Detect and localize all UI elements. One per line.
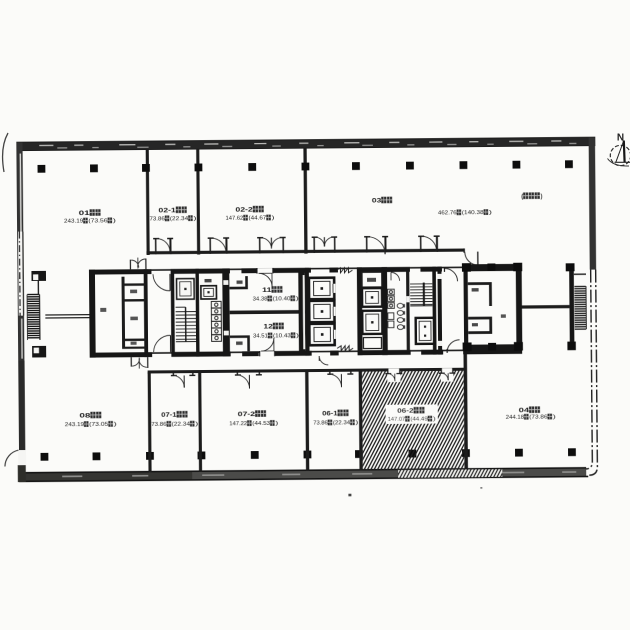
svg-text:(73.05: (73.05	[89, 422, 108, 428]
svg-text:): )	[355, 420, 358, 426]
svg-text:(10.40: (10.40	[273, 296, 291, 302]
svg-text:(44.53: (44.53	[252, 421, 270, 427]
svg-text:03: 03	[372, 197, 382, 204]
svg-text:(22.34: (22.34	[172, 422, 191, 428]
svg-text:07-1: 07-1	[161, 412, 177, 419]
svg-text:12: 12	[263, 323, 273, 330]
svg-text:): )	[296, 333, 299, 339]
svg-text:): )	[114, 422, 117, 428]
svg-text:06-2: 06-2	[397, 408, 414, 415]
svg-text:147.22: 147.22	[229, 421, 247, 427]
svg-text:02-1: 02-1	[158, 207, 176, 214]
svg-text:): )	[271, 215, 274, 221]
svg-text:): )	[113, 218, 116, 224]
svg-text:73.86: 73.86	[151, 422, 166, 428]
svg-text:34.38: 34.38	[253, 297, 268, 303]
svg-text:): )	[195, 422, 198, 428]
svg-text:11: 11	[262, 287, 272, 294]
svg-text:): )	[540, 193, 542, 200]
svg-text:(10.43: (10.43	[273, 333, 291, 339]
svg-text:(140.38: (140.38	[462, 210, 484, 216]
svg-text:): )	[275, 421, 278, 427]
svg-text:(44.49: (44.49	[410, 417, 427, 423]
svg-text:147.62: 147.62	[225, 216, 243, 222]
svg-text:34.51: 34.51	[253, 334, 268, 340]
svg-text:462.76: 462.76	[438, 210, 457, 216]
svg-text:): )	[489, 210, 492, 216]
svg-text:(73.86: (73.86	[529, 415, 547, 421]
svg-text:): )	[433, 417, 436, 423]
svg-text:(22.34: (22.34	[333, 420, 351, 426]
svg-text:243.19: 243.19	[64, 219, 83, 225]
svg-text:01: 01	[79, 210, 90, 217]
svg-text:): )	[553, 415, 556, 421]
svg-text:147.07: 147.07	[388, 417, 405, 423]
svg-text:07-2: 07-2	[238, 411, 256, 418]
svg-text:73.86: 73.86	[149, 216, 164, 222]
svg-text:(22.34: (22.34	[170, 216, 189, 222]
svg-text:244.18: 244.18	[506, 415, 524, 421]
svg-text:(44.67: (44.67	[248, 216, 266, 222]
svg-text:06-1: 06-1	[322, 410, 338, 417]
svg-text:): )	[193, 216, 196, 222]
svg-text:04: 04	[519, 407, 530, 414]
svg-text:02-2: 02-2	[235, 206, 253, 213]
svg-text:): )	[296, 296, 299, 302]
svg-text:(73.56: (73.56	[88, 218, 107, 224]
svg-text:73.86: 73.86	[313, 421, 327, 427]
svg-text:08: 08	[79, 412, 90, 419]
svg-text:243.19: 243.19	[65, 422, 84, 428]
